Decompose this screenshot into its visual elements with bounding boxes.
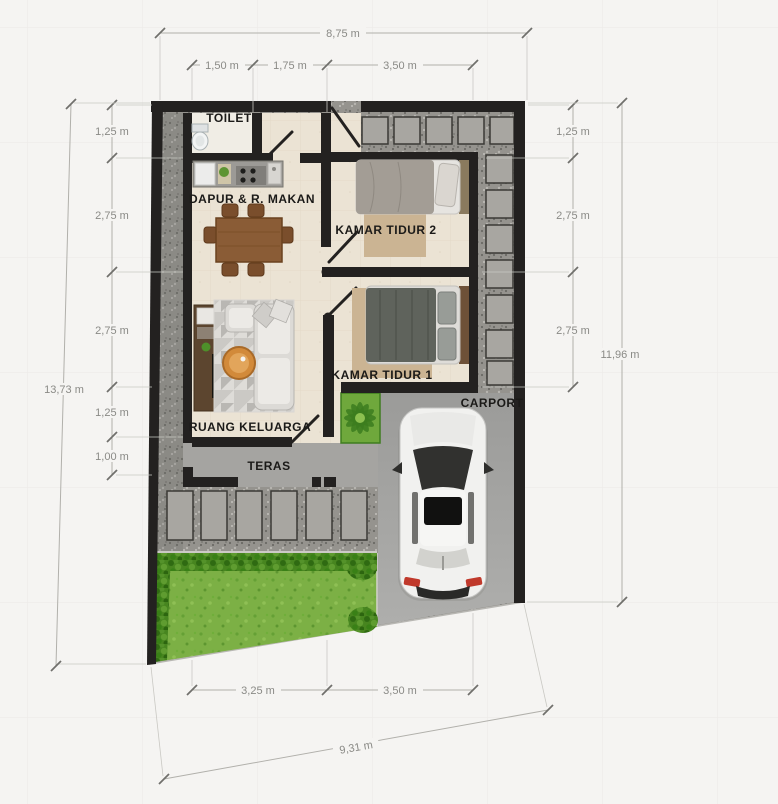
dim-right-seg1: 1,25 m <box>556 126 590 138</box>
dim-left-seg4: 1,25 m <box>95 407 129 419</box>
console-plant <box>202 343 211 352</box>
living-room-set <box>214 299 294 412</box>
dim-top-seg2: 1,75 m <box>273 60 307 72</box>
bed-1 <box>352 286 469 378</box>
bed1-pillow-1 <box>438 292 456 324</box>
room-label-bedroom1: KAMAR TIDUR 1 <box>331 368 432 382</box>
bed1-duvet <box>366 288 436 362</box>
dim-left-seg3: 2,75 m <box>95 325 129 337</box>
dim-left-seg1: 1,25 m <box>95 126 129 138</box>
dim-right-total: 11,96 m <box>601 349 640 361</box>
bed2-duvet <box>356 160 434 214</box>
dim-top-seg1: 1,50 m <box>205 60 239 72</box>
toilet-fixture <box>192 124 208 150</box>
car-windshield <box>413 446 473 490</box>
dim-bottom-seg2: 3,50 m <box>383 685 417 697</box>
terrace-stub-horizontal <box>183 477 238 487</box>
stove <box>236 166 266 185</box>
terrace-post-1 <box>312 477 321 487</box>
dim-top-total: 8,75 m <box>326 28 360 40</box>
dim-left-seg5: 1,00 m <box>95 451 129 463</box>
door-jamb-1 <box>322 268 331 277</box>
terrace-post-2 <box>324 477 336 487</box>
bush-upper <box>347 556 377 580</box>
living-front-wall <box>192 437 292 447</box>
car <box>392 408 494 601</box>
car-side-glass-right <box>468 492 474 544</box>
bedroom1-bottom-wall <box>341 382 478 393</box>
nook-wall <box>300 153 321 163</box>
dim-bottom-seg1: 3,25 m <box>241 685 275 697</box>
pavers-top-walkway <box>362 117 514 144</box>
kitchen-hall-wall <box>321 113 331 247</box>
floor-plan-svg: 8,75 m 1,50 m 1,75 m 3,50 m 1,25 m 2,75 … <box>0 0 778 804</box>
pavers-right-walkway <box>486 155 513 385</box>
room-label-toilet: TOILET <box>206 111 252 125</box>
faucet <box>272 167 276 171</box>
room-label-bedroom2: KAMAR TIDUR 2 <box>335 223 436 237</box>
lot-top-wall-right <box>361 101 525 112</box>
floor-plan-page: 8,75 m 1,50 m 1,75 m 3,50 m 1,25 m 2,75 … <box>0 0 778 804</box>
room-label-living: RUANG KELUARGA <box>189 420 311 434</box>
console-frame <box>197 308 215 324</box>
lot-right-wall <box>514 101 525 603</box>
kitchen-counter <box>193 161 283 187</box>
bedrooms-divider-wall <box>322 267 478 277</box>
planter-box <box>341 393 380 443</box>
dim-left-seg2: 2,75 m <box>95 210 129 222</box>
dim-right-seg3: 2,75 m <box>556 325 590 337</box>
car-sunroof <box>424 497 462 525</box>
car-side-glass-left <box>412 492 418 544</box>
sink <box>268 163 281 184</box>
console-shelf <box>197 327 215 339</box>
dining-table <box>216 218 282 262</box>
car-hood <box>410 412 476 446</box>
room-label-kitchen-dining: DAPUR & R. MAKAN <box>189 192 315 206</box>
sink-cabinet <box>195 163 215 185</box>
dim-top-seg3: 3,50 m <box>383 60 417 72</box>
room-label-terrace: TERAS <box>247 459 290 473</box>
sofa-cushion-2 <box>258 358 290 404</box>
house-left-wall <box>183 113 192 443</box>
dim-left-total: 13,73 m <box>44 384 84 396</box>
room-label-carport: CARPORT <box>461 396 524 410</box>
bush-lower <box>348 607 378 633</box>
dim-right-seg2: 2,75 m <box>556 210 590 222</box>
bed1-pillow-2 <box>438 328 456 360</box>
counter-plant <box>219 167 229 177</box>
hedge-top <box>152 553 377 571</box>
